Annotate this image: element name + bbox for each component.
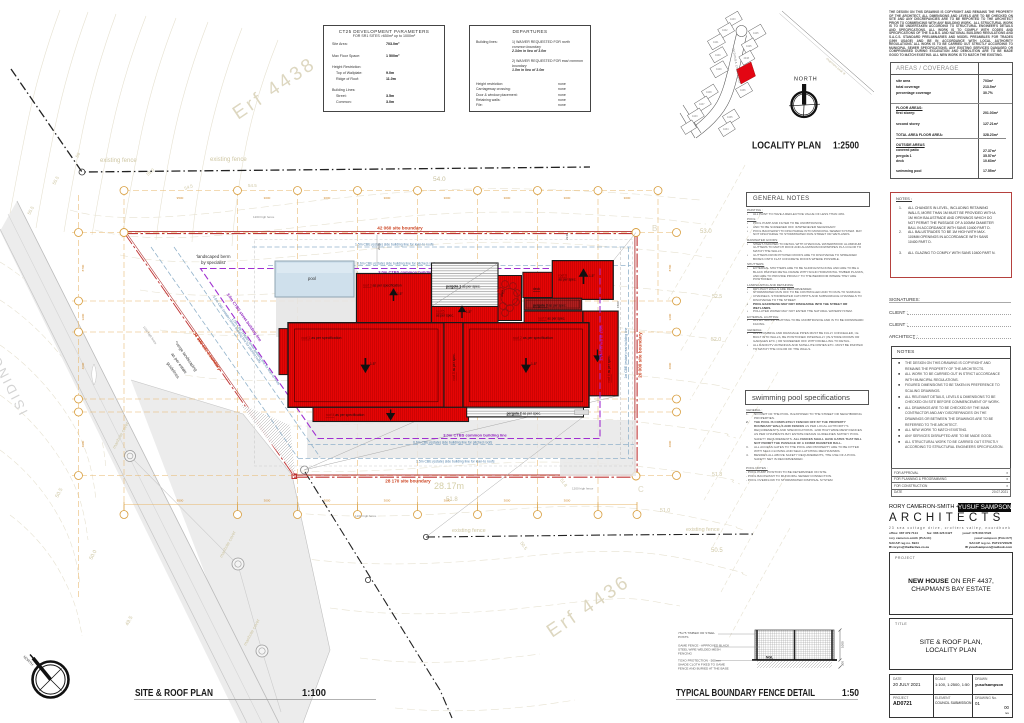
svg-text:51.8: 51.8	[559, 478, 568, 488]
svg-text:51.0: 51.0	[660, 508, 670, 514]
svg-text:50.0: 50.0	[88, 549, 98, 561]
svg-text:55.5: 55.5	[26, 205, 35, 216]
svg-text:FENCING: FENCING	[678, 652, 693, 656]
svg-text:3000: 3000	[504, 196, 511, 200]
svg-text:9500: 9500	[177, 499, 184, 503]
svg-text:pergola 2 as per spec.: pergola 2 as per spec.	[507, 412, 542, 416]
svg-text:3000: 3000	[384, 499, 391, 503]
svg-text:54.5: 54.5	[248, 183, 257, 188]
svg-text:4438: 4438	[744, 57, 750, 60]
svg-text:4440: 4440	[715, 54, 721, 57]
svg-text:NGL: NGL	[766, 656, 773, 660]
svg-text:pergola 1 as per spec.: pergola 1 as per spec.	[446, 285, 481, 289]
svg-text:50.5: 50.5	[711, 548, 723, 554]
svg-text:1000: 1000	[841, 641, 845, 648]
svg-text:LOCALITY PLAN: LOCALITY PLAN	[752, 140, 821, 152]
svg-text:4447: 4447	[699, 103, 705, 106]
svg-text:1200 high fence: 1200 high fence	[572, 487, 594, 491]
svg-text:4000: 4000	[81, 440, 85, 447]
svg-text:1200 high fence: 1200 high fence	[142, 325, 158, 345]
svg-text:1.5°: 1.5°	[466, 310, 472, 314]
svg-text:4443: 4443	[692, 115, 698, 118]
svg-text:1.5°: 1.5°	[531, 362, 538, 366]
svg-text:deck: deck	[533, 287, 540, 291]
svg-text:3000: 3000	[624, 196, 631, 200]
svg-text:3000: 3000	[504, 499, 511, 503]
svg-text:roof 3 as per specification: roof 3 as per specification	[363, 284, 402, 288]
svg-text:4449: 4449	[716, 68, 722, 71]
svg-text:NORTH: NORTH	[794, 77, 818, 83]
svg-text:3000: 3000	[324, 499, 331, 503]
svg-text:51.8: 51.8	[712, 472, 722, 478]
svg-text:4441: 4441	[713, 41, 719, 44]
svg-text:0.6m CBE (estate) side buildin: 0.6m CBE (estate) side building line for…	[357, 261, 436, 265]
svg-text:3.0m CTBS common building line: 3.0m CTBS common building line	[443, 432, 507, 437]
svg-text:49.5: 49.5	[124, 615, 134, 627]
svg-text:1200 high fence: 1200 high fence	[355, 514, 377, 518]
svg-text:4436: 4436	[740, 89, 746, 92]
svg-text:roof 9 as per spec.: roof 9 as per spec.	[452, 353, 456, 380]
svg-text:roof 7 as per spec.: roof 7 as per spec.	[538, 316, 565, 320]
svg-text:42 060 site boundary: 42 060 site boundary	[377, 226, 423, 231]
svg-text:3000: 3000	[264, 196, 271, 200]
svg-text:8700: 8700	[81, 264, 85, 271]
svg-text:roof 1 as per specification: roof 1 as per specification	[302, 336, 342, 340]
svg-text:8700: 8700	[668, 264, 672, 271]
svg-text:chapmans peak dr: chapmans peak dr	[825, 57, 846, 76]
svg-text:Erf 4438: Erf 4438	[229, 53, 320, 124]
svg-text:by specialist': by specialist'	[201, 260, 226, 265]
svg-text:4000: 4000	[668, 440, 672, 447]
svg-text:1:100: 1:100	[302, 687, 326, 699]
svg-text:'landscaped berm: 'landscaped berm	[196, 254, 231, 259]
svg-text:C: C	[638, 485, 644, 494]
svg-text:ISIDINGA AVENUE: ISIDINGA AVENUE	[0, 278, 31, 418]
svg-text:54.0: 54.0	[433, 176, 446, 183]
svg-text:existing fence: existing fence	[100, 158, 137, 164]
svg-text:1.5°: 1.5°	[589, 274, 595, 278]
svg-text:0.6m CBE (estate) side buildin: 0.6m CBE (estate) side building line for…	[413, 440, 492, 444]
svg-text:4443: 4443	[730, 18, 736, 21]
svg-text:28.17m: 28.17m	[434, 481, 464, 491]
svg-text:4000: 4000	[668, 362, 672, 369]
svg-text:4435: 4435	[727, 116, 733, 119]
svg-text:1.5m CBE (estate) side buildin: 1.5m CBE (estate) side building line for…	[416, 460, 495, 464]
svg-text:existing fence: existing fence	[452, 528, 486, 534]
svg-text:3000: 3000	[564, 196, 571, 200]
svg-text:3200: 3200	[668, 313, 672, 320]
svg-text:Erf 4436: Erf 4436	[543, 571, 634, 642]
svg-text:1200 high fence: 1200 high fence	[253, 215, 275, 219]
svg-text:1m CBE (estate) rear building: 1m CBE (estate) rear building line	[624, 327, 628, 378]
svg-text:4448: 4448	[706, 91, 712, 94]
svg-text:3000: 3000	[444, 499, 451, 503]
svg-text:9500: 9500	[177, 196, 184, 200]
svg-text:56: 56	[74, 151, 81, 158]
svg-text:TYPICAL BOUNDARY FENCE DETAIL: TYPICAL BOUNDARY FENCE DETAIL	[676, 687, 815, 699]
svg-text:3200: 3200	[81, 313, 85, 320]
svg-text:50.5: 50.5	[54, 487, 64, 499]
svg-text:as per spec.: as per spec.	[559, 278, 577, 282]
svg-text:SITE & ROOF PLAN: SITE & ROOF PLAN	[135, 687, 213, 699]
svg-text:FENCE AND BURIED AT THE BASE: FENCE AND BURIED AT THE BASE	[678, 667, 729, 671]
svg-text:1:50: 1:50	[842, 687, 859, 699]
svg-text:4442: 4442	[722, 29, 728, 32]
svg-text:4434: 4434	[723, 128, 729, 131]
svg-text:1.5°: 1.5°	[370, 362, 377, 366]
svg-text:20 000 site boundary: 20 000 site boundary	[638, 332, 643, 378]
svg-text:POSTS: POSTS	[678, 635, 689, 639]
svg-text:50.5: 50.5	[519, 541, 528, 551]
svg-text:roof 2 as per specification: roof 2 as per specification	[513, 336, 553, 340]
svg-text:3000: 3000	[564, 499, 571, 503]
svg-text:4445: 4445	[753, 32, 759, 35]
svg-text:1.5°: 1.5°	[397, 292, 403, 296]
svg-text:3000: 3000	[444, 196, 451, 200]
svg-text:2340: 2340	[565, 233, 569, 240]
svg-text:2000: 2000	[377, 243, 381, 250]
svg-text:54.5: 54.5	[184, 183, 194, 191]
svg-text:53.0: 53.0	[700, 229, 712, 235]
svg-text:pergola 3 as per spec.: pergola 3 as per spec.	[533, 303, 567, 307]
svg-text:55.5: 55.5	[51, 175, 60, 186]
svg-text:4000: 4000	[81, 362, 85, 369]
svg-text:3000: 3000	[324, 196, 331, 200]
svg-text:3000: 3000	[384, 196, 391, 200]
svg-text:as per spec.: as per spec.	[436, 314, 454, 318]
svg-text:roof 8 as per spec.: roof 8 as per spec.	[607, 355, 611, 382]
svg-text:300: 300	[841, 661, 845, 666]
svg-text:B: B	[652, 224, 657, 233]
svg-text:1.5m CBE (estate) side buildin: 1.5m CBE (estate) side building line for…	[355, 243, 434, 247]
svg-text:52.0: 52.0	[711, 337, 721, 343]
svg-text:28 170 site boundary: 28 170 site boundary	[385, 479, 431, 484]
svg-text:existing fence: existing fence	[210, 157, 247, 163]
svg-text:52.5: 52.5	[712, 294, 722, 300]
svg-text:4425: 4425	[746, 45, 752, 48]
svg-text:1:2500: 1:2500	[833, 140, 859, 152]
svg-text:3000: 3000	[264, 499, 271, 503]
svg-text:pool: pool	[308, 276, 316, 281]
svg-text:stairs: stairs	[500, 289, 504, 297]
svg-text:1500: 1500	[616, 301, 620, 308]
svg-text:1.5m CBE (estate) street build: 1.5m CBE (estate) street building line f…	[231, 317, 281, 386]
svg-text:existing fence: existing fence	[686, 527, 720, 533]
svg-text:roof 4 as per specification: roof 4 as per specification	[326, 413, 365, 417]
